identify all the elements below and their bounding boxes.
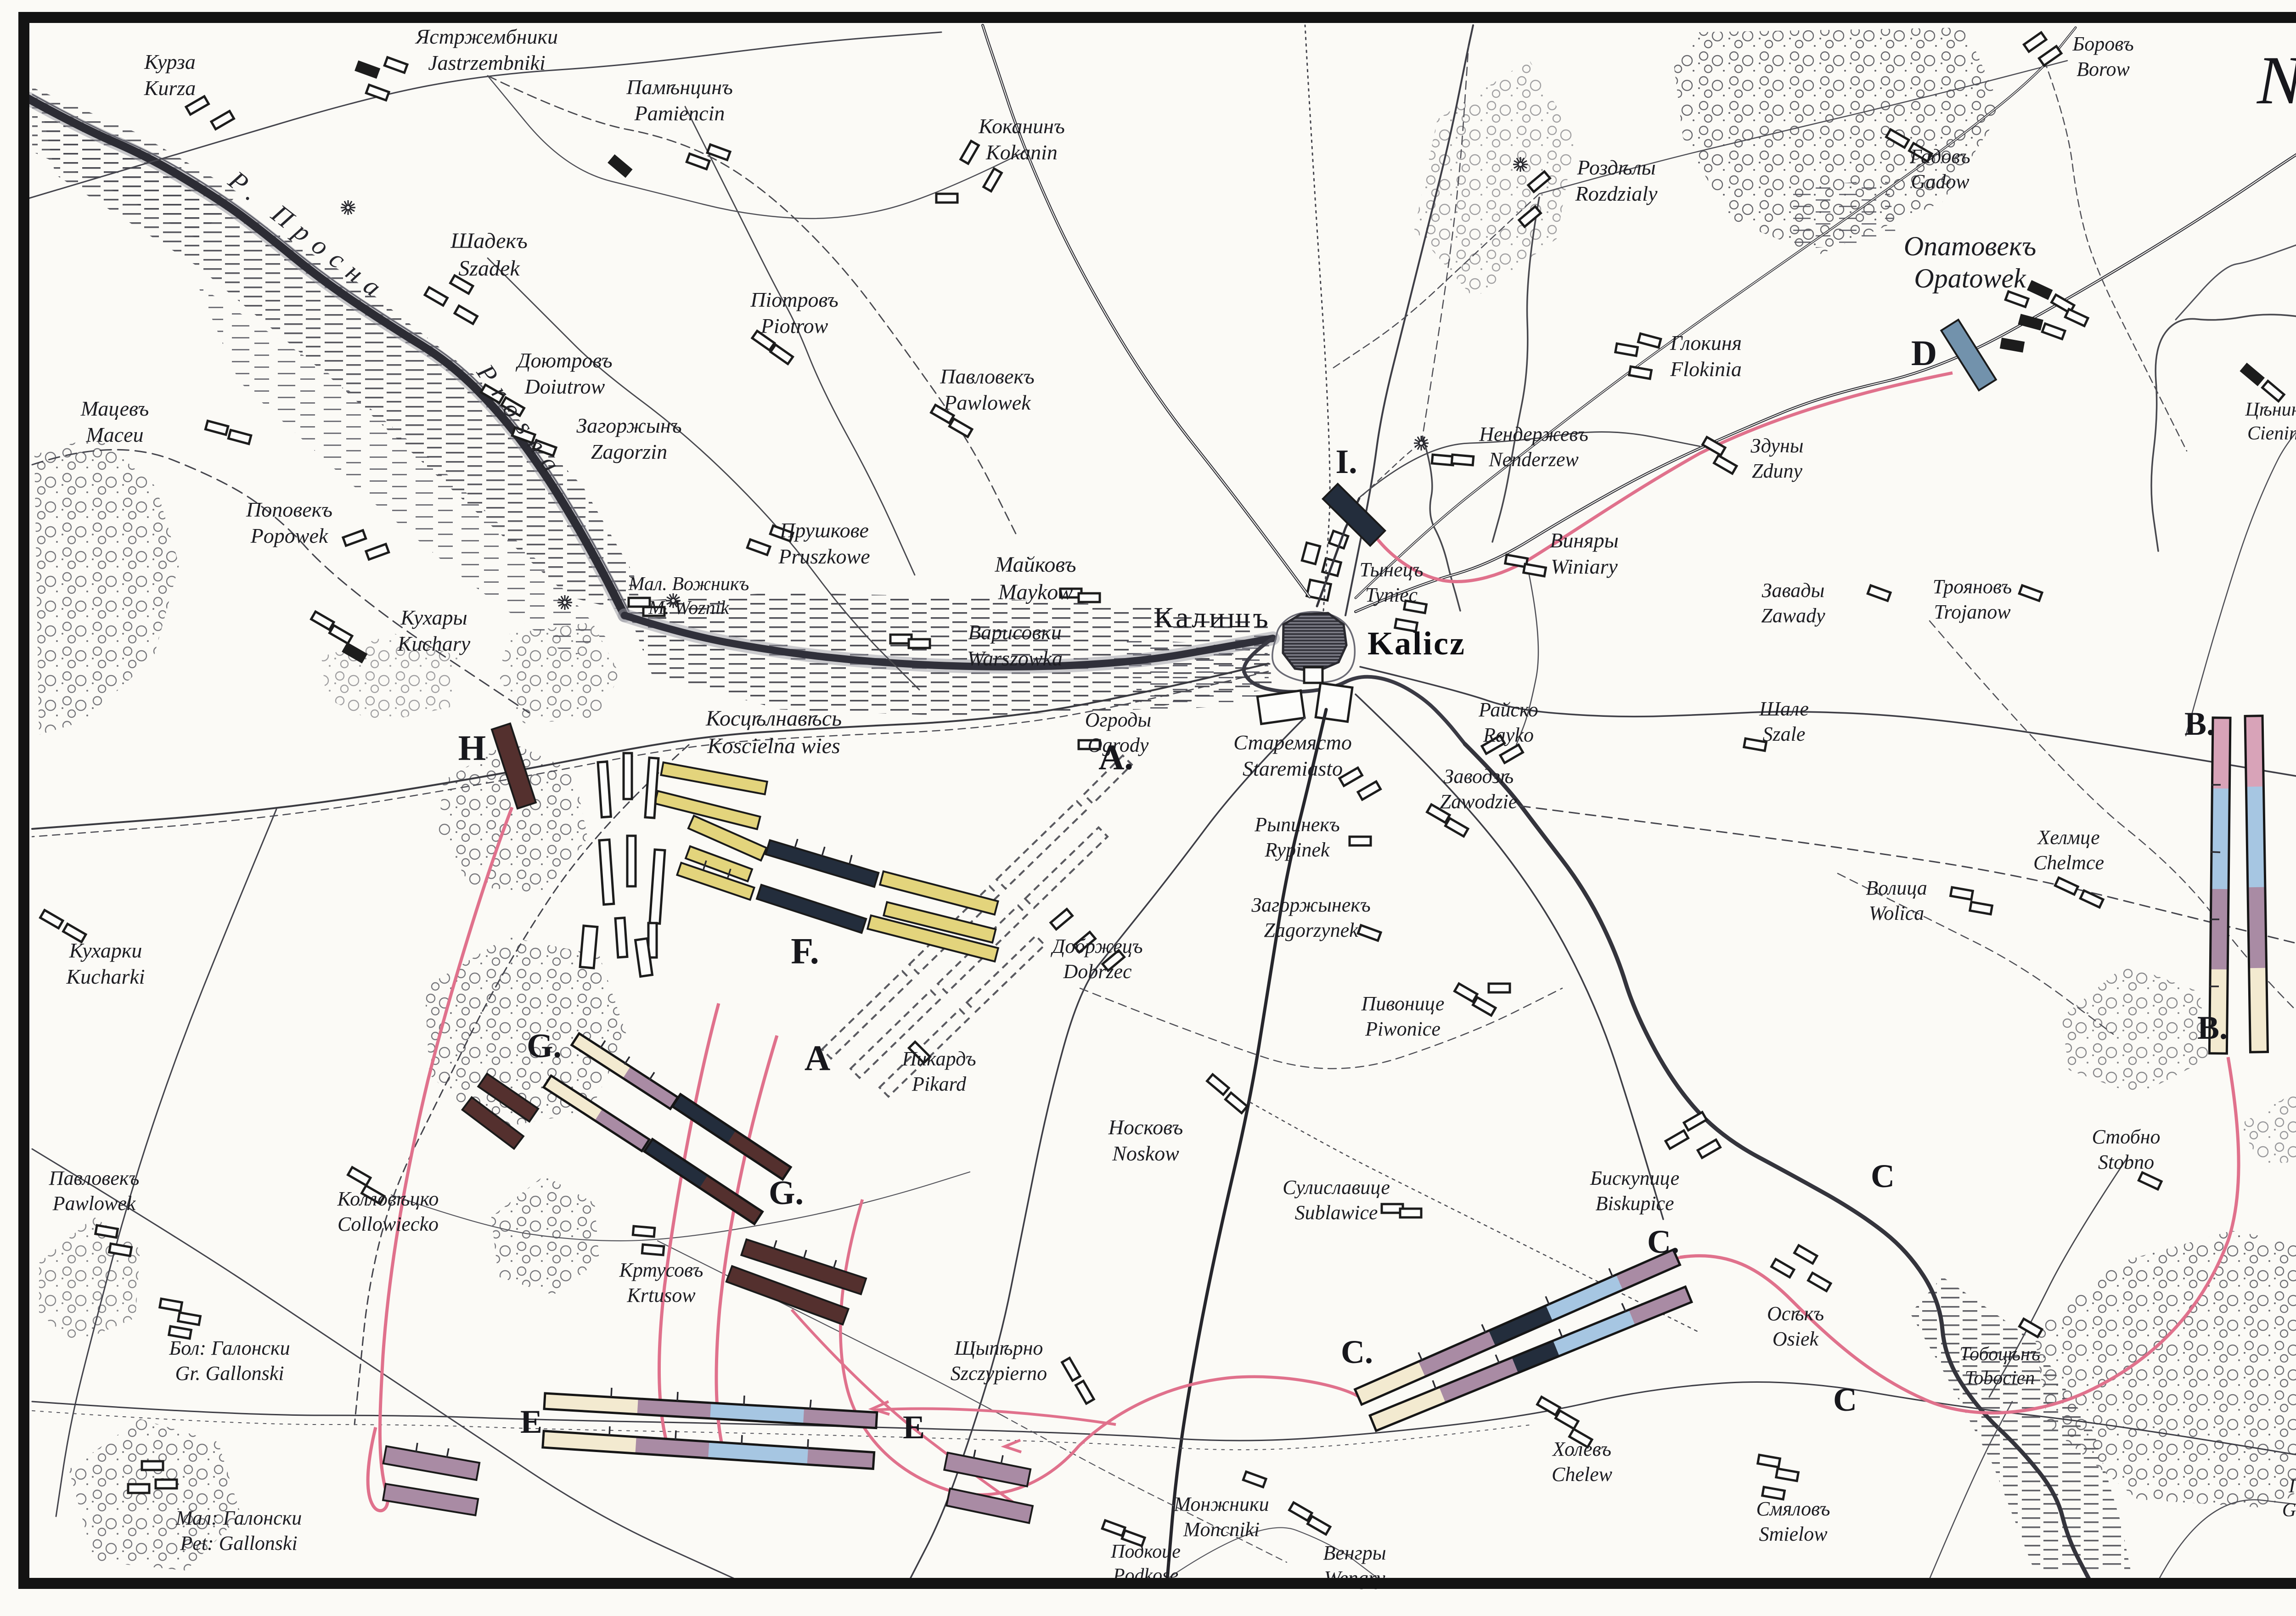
svg-text:Piwonice: Piwonice bbox=[1365, 1018, 1441, 1040]
svg-text:M. Woznik: M. Woznik bbox=[648, 597, 730, 619]
svg-text:Коканинъ: Коканинъ bbox=[978, 114, 1065, 138]
svg-text:Прушкове: Прушкове bbox=[779, 518, 869, 542]
svg-text:E: E bbox=[520, 1403, 542, 1440]
svg-text:Szczypierno: Szczypierno bbox=[951, 1362, 1047, 1385]
svg-text:Rayko: Rayko bbox=[1483, 724, 1534, 746]
svg-text:Рыпинекъ: Рыпинекъ bbox=[1254, 813, 1339, 836]
svg-text:Шале: Шале bbox=[1759, 698, 1809, 720]
svg-text:Павловекъ: Павловекъ bbox=[49, 1167, 140, 1189]
svg-text:Мал: Галонски: Мал: Галонски bbox=[175, 1507, 302, 1529]
svg-text:Rozdzialy: Rozdzialy bbox=[1575, 182, 1658, 205]
svg-text:Zawady: Zawady bbox=[1761, 604, 1825, 627]
svg-text:Godziesze: Godziesze bbox=[2282, 1500, 2296, 1521]
svg-text:F.: F. bbox=[791, 931, 819, 972]
svg-text:Заводзѣ: Заводзѣ bbox=[1444, 765, 1514, 788]
svg-text:Майковъ: Майковъ bbox=[994, 552, 1076, 577]
svg-text:Годзице: Годзице bbox=[2288, 1476, 2296, 1497]
svg-text:Kurza: Kurza bbox=[144, 76, 196, 100]
svg-text:Волица: Волица bbox=[1866, 877, 1927, 899]
svg-text:Старемясто: Старемясто bbox=[1233, 731, 1352, 754]
svg-text:Kalicz: Kalicz bbox=[1367, 625, 1466, 662]
svg-text:Подкоце: Подкоце bbox=[1110, 1541, 1181, 1562]
svg-text:Zagorzin: Zagorzin bbox=[591, 440, 667, 463]
svg-text:Zduny: Zduny bbox=[1752, 460, 1802, 482]
svg-text:Sublawice: Sublawice bbox=[1295, 1201, 1378, 1224]
svg-text:Пикардъ: Пикардъ bbox=[901, 1047, 976, 1070]
svg-text:Бол: Галонски: Бол: Галонски bbox=[169, 1337, 290, 1359]
svg-text:Косцѣлнавѣсь: Косцѣлнавѣсь bbox=[705, 706, 842, 731]
svg-text:Калишъ: Калишъ bbox=[1154, 601, 1271, 634]
svg-text:Smielow: Smielow bbox=[1759, 1523, 1828, 1545]
svg-text:Носковъ: Носковъ bbox=[1108, 1115, 1183, 1139]
svg-text:N: N bbox=[2256, 42, 2296, 118]
svg-text:Пивонице: Пивонице bbox=[1361, 992, 1445, 1015]
svg-text:Холевъ: Холевъ bbox=[1552, 1438, 1611, 1460]
svg-text:Хелмце: Хелмце bbox=[2037, 826, 2099, 849]
svg-text:Ястржембники: Ястржембники bbox=[415, 25, 558, 48]
svg-text:C: C bbox=[1833, 1381, 1857, 1418]
svg-text:Krtusow: Krtusow bbox=[626, 1284, 696, 1306]
svg-text:Zagorzynek: Zagorzynek bbox=[1264, 919, 1359, 941]
svg-text:Щыпѣрно: Щыпѣрно bbox=[954, 1337, 1043, 1359]
svg-text:C.: C. bbox=[1647, 1223, 1679, 1260]
svg-text:Pamiencin: Pamiencin bbox=[634, 101, 725, 125]
svg-text:E: E bbox=[903, 1409, 925, 1446]
svg-text:Загоржынекъ: Загоржынекъ bbox=[1251, 894, 1370, 916]
svg-text:Трояновъ: Трояновъ bbox=[1933, 575, 2012, 598]
svg-text:Maykow: Maykow bbox=[998, 580, 1073, 604]
svg-text:Zawodzie: Zawodzie bbox=[1440, 790, 1518, 813]
svg-text:Кухарки: Кухарки bbox=[69, 939, 142, 962]
svg-text:Мацевъ: Мацевъ bbox=[80, 397, 149, 420]
svg-text:G.: G. bbox=[527, 1027, 562, 1065]
svg-text:Памѣнцинъ: Памѣнцинъ bbox=[626, 75, 733, 99]
svg-text:Szale: Szale bbox=[1763, 723, 1806, 745]
svg-text:Koscielna wies: Koscielna wies bbox=[707, 734, 840, 758]
svg-text:Borow: Borow bbox=[2077, 58, 2130, 80]
svg-text:Піотровъ: Піотровъ bbox=[750, 288, 838, 311]
svg-text:B.: B. bbox=[2184, 705, 2215, 742]
svg-text:Pikard: Pikard bbox=[912, 1073, 967, 1095]
svg-text:Опатовекъ: Опатовекъ bbox=[1904, 231, 2037, 261]
svg-text:Роздѣлы: Роздѣлы bbox=[1576, 156, 1655, 179]
svg-text:Staremiasto: Staremiasto bbox=[1243, 757, 1343, 780]
svg-text:Цѣнин: Цѣнин bbox=[2245, 399, 2296, 420]
svg-text:Gr. Gallonski: Gr. Gallonski bbox=[175, 1362, 284, 1385]
svg-text:Piotrow: Piotrow bbox=[760, 314, 828, 338]
svg-text:Stobno: Stobno bbox=[2098, 1151, 2154, 1173]
svg-text:Здуны: Здуны bbox=[1750, 434, 1803, 457]
svg-text:C.: C. bbox=[1341, 1334, 1373, 1370]
svg-text:Венгры: Венгры bbox=[1323, 1542, 1386, 1564]
svg-text:Popowek: Popowek bbox=[250, 524, 329, 547]
svg-text:Tobocien: Tobocien bbox=[1965, 1368, 2035, 1389]
svg-text:Смяловъ: Смяловъ bbox=[1756, 1498, 1830, 1520]
svg-text:Бискупице: Бискупице bbox=[1590, 1167, 1679, 1189]
svg-text:Maceu: Maceu bbox=[85, 423, 143, 446]
svg-text:A: A bbox=[805, 1038, 830, 1078]
svg-text:B.: B. bbox=[2197, 1009, 2228, 1046]
svg-text:Pruszkowe: Pruszkowe bbox=[778, 545, 870, 568]
svg-text:Загоржынъ: Загоржынъ bbox=[576, 414, 681, 437]
svg-text:A.: A. bbox=[1098, 737, 1133, 777]
svg-text:Cienin: Cienin bbox=[2247, 423, 2296, 444]
svg-text:Кртусовъ: Кртусовъ bbox=[619, 1259, 703, 1281]
svg-text:Монжники: Монжники bbox=[1173, 1493, 1269, 1515]
svg-text:Flokinia: Flokinia bbox=[1670, 357, 1742, 381]
svg-text:Tyniec: Tyniec bbox=[1365, 584, 1418, 606]
svg-text:Osiek: Osiek bbox=[1773, 1328, 1819, 1350]
svg-text:Warszowka: Warszowka bbox=[967, 647, 1063, 670]
svg-text:Dobrzec: Dobrzec bbox=[1063, 960, 1132, 983]
svg-text:Nenderzew: Nenderzew bbox=[1488, 448, 1579, 471]
svg-text:Нендержевъ: Нендержевъ bbox=[1479, 423, 1588, 445]
svg-text:Стобно: Стобно bbox=[2092, 1126, 2160, 1148]
svg-text:C: C bbox=[1871, 1158, 1895, 1194]
svg-text:Winiary: Winiary bbox=[1551, 555, 1618, 578]
svg-text:Тобоцѣнъ: Тобоцѣнъ bbox=[1959, 1344, 2040, 1365]
svg-text:Боровъ: Боровъ bbox=[2072, 33, 2133, 55]
svg-text:Сулиславице: Сулиславице bbox=[1283, 1176, 1390, 1199]
svg-text:Biskupice: Biskupice bbox=[1595, 1192, 1674, 1215]
svg-text:Гадовъ: Гадовъ bbox=[1909, 145, 1970, 168]
svg-text:Кухары: Кухары bbox=[400, 606, 467, 629]
svg-text:H: H bbox=[458, 728, 486, 768]
svg-text:Pet: Gallonski: Pet: Gallonski bbox=[180, 1532, 297, 1554]
svg-text:G.: G. bbox=[769, 1174, 804, 1212]
svg-text:Kokanin: Kokanin bbox=[985, 141, 1058, 164]
svg-text:Шадекъ: Шадекъ bbox=[450, 229, 528, 253]
svg-text:Глокиня: Глокиня bbox=[1670, 331, 1742, 355]
svg-text:Осѣкъ: Осѣкъ bbox=[1767, 1302, 1824, 1325]
svg-text:Doiutrow: Doiutrow bbox=[524, 375, 605, 398]
svg-text:I.: I. bbox=[1335, 443, 1357, 481]
svg-text:Trojanow: Trojanow bbox=[1934, 601, 2011, 623]
svg-text:Kucharki: Kucharki bbox=[66, 965, 145, 988]
svg-text:Тынецъ: Тынецъ bbox=[1360, 558, 1424, 581]
svg-text:Мал. Вожникъ: Мал. Вожникъ bbox=[628, 574, 749, 595]
svg-text:Павловекъ: Павловекъ bbox=[940, 365, 1035, 388]
svg-text:Доютровъ: Доютровъ bbox=[515, 349, 612, 372]
svg-text:Pawlowek: Pawlowek bbox=[943, 391, 1031, 414]
svg-text:Добржецъ: Добржецъ bbox=[1050, 935, 1142, 957]
svg-text:Jastrzembniki: Jastrzembniki bbox=[428, 51, 546, 74]
svg-text:Opatowek: Opatowek bbox=[1914, 263, 2026, 293]
svg-text:Поповекъ: Поповекъ bbox=[246, 498, 332, 521]
svg-text:Виняры: Виняры bbox=[1550, 529, 1618, 552]
svg-text:Gadow: Gadow bbox=[1911, 170, 1970, 193]
svg-text:Chelew: Chelew bbox=[1552, 1463, 1613, 1486]
svg-text:Kuchary: Kuchary bbox=[397, 632, 471, 655]
svg-text:Курза: Курза bbox=[144, 50, 196, 73]
svg-text:Завады: Завады bbox=[1762, 579, 1825, 602]
svg-text:Колловѣцко: Колловѣцко bbox=[337, 1188, 439, 1210]
svg-text:Noskow: Noskow bbox=[1112, 1142, 1179, 1165]
svg-text:Pawlowek: Pawlowek bbox=[52, 1192, 136, 1215]
svg-text:Rypinek: Rypinek bbox=[1265, 839, 1330, 861]
svg-text:Szadek: Szadek bbox=[458, 256, 520, 281]
svg-text:Варисовки: Варисовки bbox=[968, 620, 1062, 644]
svg-text:Collowiecko: Collowiecko bbox=[338, 1213, 439, 1235]
svg-text:Wolica: Wolica bbox=[1869, 902, 1925, 924]
svg-text:Огроды: Огроды bbox=[1085, 709, 1151, 731]
svg-text:Райско: Райско bbox=[1478, 698, 1538, 721]
svg-text:Moncniki: Moncniki bbox=[1183, 1518, 1260, 1541]
svg-text:D: D bbox=[1911, 333, 1937, 373]
svg-text:Chelmce: Chelmce bbox=[2033, 851, 2104, 874]
